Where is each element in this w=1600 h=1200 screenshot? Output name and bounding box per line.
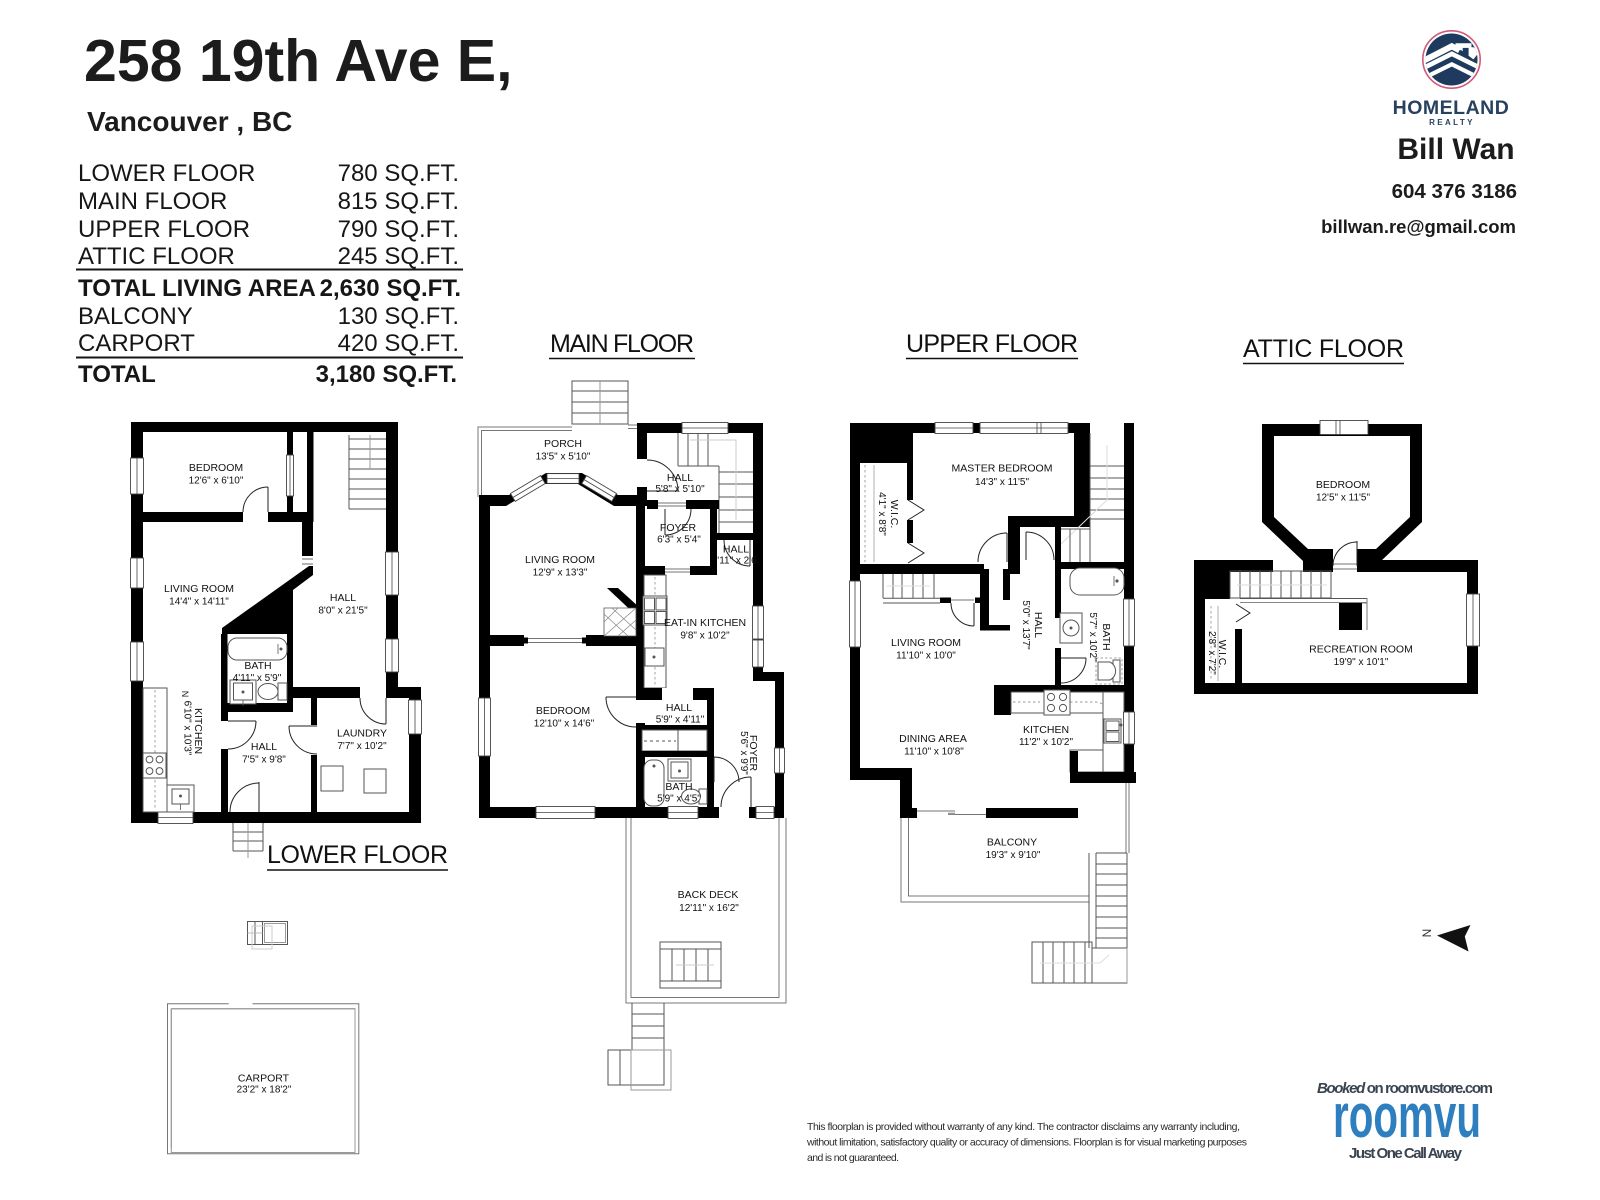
svg-text:TOTAL LIVING AREA: TOTAL LIVING AREA — [78, 275, 316, 302]
svg-text:BEDROOM: BEDROOM — [189, 462, 243, 474]
svg-text:5'7" x 10'2": 5'7" x 10'2" — [1087, 612, 1098, 662]
svg-text:BALCONY: BALCONY — [78, 303, 193, 330]
svg-text:12'5" x 11'5": 12'5" x 11'5" — [1316, 493, 1371, 504]
svg-text:11'2" x 10'2": 11'2" x 10'2" — [1019, 737, 1074, 748]
svg-text:Vancouver , BC: Vancouver , BC — [87, 106, 292, 137]
svg-text:W.I.C.: W.I.C. — [888, 500, 900, 529]
svg-text:MAIN FLOOR: MAIN FLOOR — [550, 330, 694, 358]
svg-text:TOTAL: TOTAL — [78, 361, 156, 388]
svg-text:CARPORT: CARPORT — [238, 1073, 290, 1085]
svg-text:780 SQ.FT.: 780 SQ.FT. — [338, 160, 459, 187]
svg-text:Just One Call Away: Just One Call Away — [1349, 1145, 1463, 1162]
svg-text:N: N — [1420, 929, 1434, 938]
svg-text:258 19th Ave E,: 258 19th Ave E, — [84, 28, 513, 94]
svg-text:2'8" x 7'2": 2'8" x 7'2" — [1206, 631, 1217, 675]
svg-text:6'3" x 5'4": 6'3" x 5'4" — [657, 535, 701, 546]
svg-text:4'1" x 8'8": 4'1" x 8'8" — [876, 492, 887, 536]
svg-text:LOWER FLOOR: LOWER FLOOR — [78, 160, 255, 187]
svg-text:12'6" x 6'10": 12'6" x 6'10" — [189, 476, 244, 487]
svg-text:HALL: HALL — [1032, 612, 1044, 638]
svg-text:PORCH: PORCH — [544, 438, 582, 450]
svg-text:815 SQ.FT.: 815 SQ.FT. — [338, 188, 459, 215]
svg-text:11'10" x 10'0": 11'10" x 10'0" — [896, 651, 956, 662]
svg-text:LIVING ROOM: LIVING ROOM — [891, 637, 961, 649]
svg-text:UPPER FLOOR: UPPER FLOOR — [78, 216, 250, 243]
svg-text:7'5" x 9'8": 7'5" x 9'8" — [242, 755, 286, 766]
svg-text:BACK DECK: BACK DECK — [678, 889, 739, 901]
svg-text:2,630 SQ.FT.: 2,630 SQ.FT. — [320, 275, 461, 302]
svg-text:23'2" x 18'2": 23'2" x 18'2" — [237, 1085, 292, 1096]
svg-text:12'11" x 16'2": 12'11" x 16'2" — [679, 903, 739, 914]
svg-text:9'8" x 10'2": 9'8" x 10'2" — [680, 631, 730, 642]
svg-text:LOWER FLOOR: LOWER FLOOR — [267, 841, 448, 869]
svg-text:BEDROOM: BEDROOM — [536, 705, 590, 717]
svg-text:5'0" x 13'7": 5'0" x 13'7" — [1020, 600, 1031, 650]
svg-text:LAUNDRY: LAUNDRY — [337, 728, 387, 740]
svg-text:LIVING ROOM: LIVING ROOM — [164, 583, 234, 595]
svg-text:13'5" x 5'10": 13'5" x 5'10" — [536, 452, 591, 463]
svg-text:CARPORT: CARPORT — [78, 330, 195, 357]
svg-text:ATTIC FLOOR: ATTIC FLOOR — [78, 243, 235, 270]
svg-text:'11" x 2'6: '11" x 2'6 — [717, 556, 757, 567]
svg-text:MAIN FLOOR: MAIN FLOOR — [78, 188, 227, 215]
svg-text:8'0" x 21'5": 8'0" x 21'5" — [318, 606, 368, 617]
svg-text:14'3" x 11'5": 14'3" x 11'5" — [975, 477, 1030, 488]
svg-text:KITCHEN: KITCHEN — [192, 708, 204, 754]
svg-text:and is not guaranteed.: and is not guaranteed. — [807, 1152, 899, 1164]
svg-text:N: N — [180, 691, 190, 698]
svg-text:4'11" x 5'9": 4'11" x 5'9" — [233, 673, 282, 684]
svg-text:BATH: BATH — [665, 781, 692, 793]
svg-text:790 SQ.FT.: 790 SQ.FT. — [338, 216, 459, 243]
svg-text:HALL: HALL — [330, 592, 356, 604]
svg-text:130 SQ.FT.: 130 SQ.FT. — [338, 303, 459, 330]
svg-text:19'3" x 9'10": 19'3" x 9'10" — [986, 850, 1041, 861]
svg-text:12'9" x 13'3": 12'9" x 13'3" — [533, 568, 588, 579]
svg-text:KITCHEN: KITCHEN — [1023, 724, 1069, 736]
svg-text:HALL: HALL — [666, 702, 692, 714]
svg-text:HALL: HALL — [723, 544, 749, 556]
svg-text:19'9" x 10'1": 19'9" x 10'1" — [1334, 657, 1389, 668]
svg-text:245 SQ.FT.: 245 SQ.FT. — [338, 243, 459, 270]
svg-text:604 376 3186: 604 376 3186 — [1392, 180, 1517, 203]
svg-text:7'7" x 10'2": 7'7" x 10'2" — [337, 741, 387, 752]
svg-text:FOYER: FOYER — [660, 522, 697, 534]
svg-text:roomvu: roomvu — [1333, 1082, 1481, 1151]
svg-text:billwan.re@gmail.com: billwan.re@gmail.com — [1321, 216, 1516, 237]
svg-text:UPPER FLOOR: UPPER FLOOR — [906, 330, 1078, 358]
svg-text:BALCONY: BALCONY — [987, 837, 1037, 849]
svg-text:5'9" x 4'5": 5'9" x 4'5" — [657, 794, 701, 805]
svg-text:BEDROOM: BEDROOM — [1316, 479, 1370, 491]
svg-text:5'6" x 9'9": 5'6" x 9'9" — [738, 731, 749, 775]
svg-text:REALTY: REALTY — [1429, 118, 1475, 127]
svg-text:12'10" x 14'6": 12'10" x 14'6" — [534, 719, 595, 730]
svg-text:This floorplan is provided wit: This floorplan is provided without warra… — [807, 1121, 1240, 1133]
svg-text:BATH: BATH — [1100, 623, 1112, 650]
svg-text:HALL: HALL — [251, 741, 277, 753]
svg-text:5'8" x 5'10": 5'8" x 5'10" — [655, 484, 705, 495]
svg-text:Bill Wan: Bill Wan — [1397, 133, 1514, 166]
svg-text:HALL: HALL — [667, 472, 693, 484]
svg-text:LIVING ROOM: LIVING ROOM — [525, 554, 595, 566]
svg-text:ATTIC FLOOR: ATTIC FLOOR — [1243, 335, 1404, 363]
svg-text:RECREATION ROOM: RECREATION ROOM — [1309, 644, 1413, 656]
svg-text:3,180 SQ.FT.: 3,180 SQ.FT. — [316, 361, 457, 388]
svg-text:14'4" x 14'11": 14'4" x 14'11" — [169, 597, 229, 608]
svg-text:EAT-IN KITCHEN: EAT-IN KITCHEN — [664, 617, 746, 629]
svg-text:420 SQ.FT.: 420 SQ.FT. — [338, 330, 459, 357]
svg-text:BATH: BATH — [244, 660, 271, 672]
svg-text:6'10" x 10'3": 6'10" x 10'3" — [182, 701, 193, 756]
svg-text:DINING AREA: DINING AREA — [899, 733, 967, 745]
svg-text:HOMELAND: HOMELAND — [1393, 97, 1510, 119]
svg-text:without limitation, satisfacto: without limitation, satisfactory quality… — [806, 1137, 1247, 1149]
svg-text:MASTER BEDROOM: MASTER BEDROOM — [952, 463, 1053, 475]
svg-text:11'10" x 10'8": 11'10" x 10'8" — [904, 747, 964, 758]
svg-text:5'9" x 4'11": 5'9" x 4'11" — [656, 715, 705, 726]
